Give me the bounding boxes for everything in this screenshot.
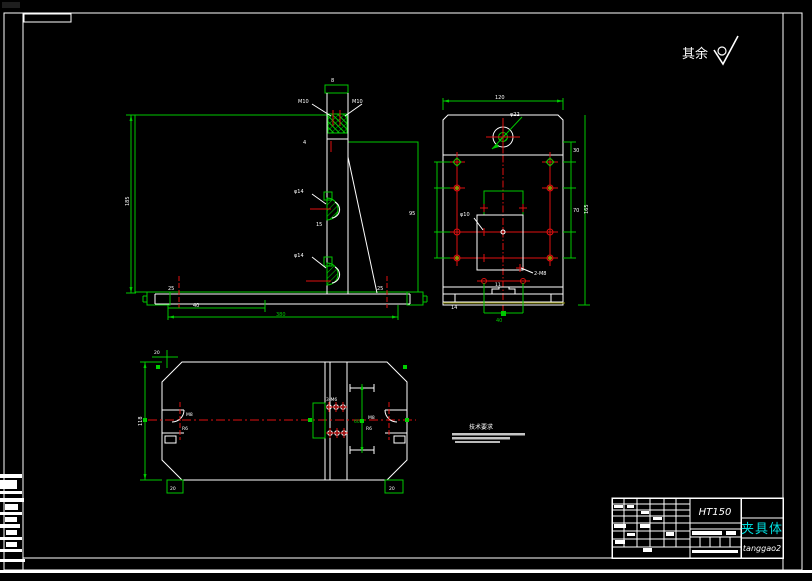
grip-square xyxy=(403,365,407,369)
rib-edge xyxy=(348,157,377,293)
dim-label: 20 xyxy=(154,350,160,356)
dim-label: 40 xyxy=(193,303,199,309)
title-block: HT150 夹具体 tanggao2 xyxy=(612,498,783,558)
part-name: 夹具体 xyxy=(741,522,783,537)
dim-label: 118 xyxy=(138,416,144,426)
technical-notes: 技术要求 xyxy=(452,423,525,443)
dim-label: 3-M6 xyxy=(326,397,337,403)
dim-label: 25 xyxy=(377,286,383,292)
frame-zone-box xyxy=(24,14,71,22)
side-view[interactable]: 120 φ22 φ10 2-M8 30 70 165 14 11 40 xyxy=(434,95,590,324)
boss-bottom xyxy=(306,257,340,285)
dim-label: 70 xyxy=(573,208,579,214)
dim-label: 30 xyxy=(573,148,579,154)
dim-label: M10 xyxy=(298,99,309,105)
note-line xyxy=(452,437,510,440)
notes-title: 技术要求 xyxy=(469,423,493,431)
grip-square xyxy=(156,365,160,369)
dim-label: M8 xyxy=(368,415,375,421)
grip-square xyxy=(501,311,506,316)
dim-label: 380 xyxy=(276,312,286,318)
dim-label: 185 xyxy=(125,196,131,206)
grip-square xyxy=(405,418,409,422)
surface-finish-label: 其余 xyxy=(682,46,708,62)
dim-label: 20 xyxy=(170,486,176,492)
section-leader xyxy=(492,117,522,149)
dim-label: R6 xyxy=(182,426,188,432)
dim-label: 165 xyxy=(584,204,590,214)
note-line xyxy=(452,433,525,436)
grip-square xyxy=(360,419,364,423)
note-line xyxy=(455,441,500,443)
drawing-frame xyxy=(0,2,812,573)
bottom-edge-band xyxy=(0,570,812,573)
side-base xyxy=(443,279,565,317)
corner-artifact xyxy=(2,2,20,8)
dim-label: 2-M8 xyxy=(534,271,546,277)
dim-label: 95 xyxy=(409,211,415,217)
dim-label: 15 xyxy=(316,222,322,228)
dim-label: 25 xyxy=(168,286,174,292)
roughness-circle-icon xyxy=(718,47,726,55)
boss-top xyxy=(310,192,340,220)
dim-label: M10 xyxy=(352,99,363,105)
dim-label: φ22 xyxy=(510,112,520,118)
slot-right xyxy=(385,402,407,443)
plan-view[interactable]: 118 20 20 20 3-M6 M8 R6 M8 R6 60 xyxy=(138,350,416,493)
dim-label: φ14 xyxy=(294,189,304,195)
main-bore xyxy=(486,117,522,153)
dim-label: 40 xyxy=(496,318,502,324)
leader-line xyxy=(474,218,483,230)
dim-label: 4 xyxy=(303,140,306,146)
dim-label: φ10 xyxy=(460,212,470,218)
body-outline xyxy=(162,362,407,480)
dim-label: 14 xyxy=(451,305,457,311)
hatch-section-top xyxy=(328,114,347,133)
dim-label: 120 xyxy=(495,95,505,101)
column-cap xyxy=(325,85,348,93)
dim-label: 8 xyxy=(331,78,334,84)
leader-line xyxy=(312,104,331,116)
body-outline xyxy=(135,115,418,292)
slot-left xyxy=(162,402,184,443)
dim-label: 60 xyxy=(354,419,360,425)
surface-finish-note: 其余 xyxy=(682,36,738,64)
dim-label: 20 xyxy=(389,486,395,492)
dim-label: M8 xyxy=(186,412,193,418)
material-label: HT150 xyxy=(699,507,732,518)
dim-label: φ14 xyxy=(294,253,304,259)
dim-label: R6 xyxy=(366,426,372,432)
dim-label: 11 xyxy=(495,282,501,288)
cad-drawing-canvas: 其余 xyxy=(0,0,812,581)
grip-square xyxy=(308,418,312,422)
title-grid-entries xyxy=(614,505,674,552)
front-dimensions: 8 M10 M10 4 φ14 φ14 15 25 25 40 380 185 … xyxy=(125,78,415,320)
front-view[interactable]: 8 M10 M10 4 φ14 φ14 15 25 25 40 380 185 … xyxy=(125,78,427,320)
drafter-name: tanggao2 xyxy=(743,544,781,553)
